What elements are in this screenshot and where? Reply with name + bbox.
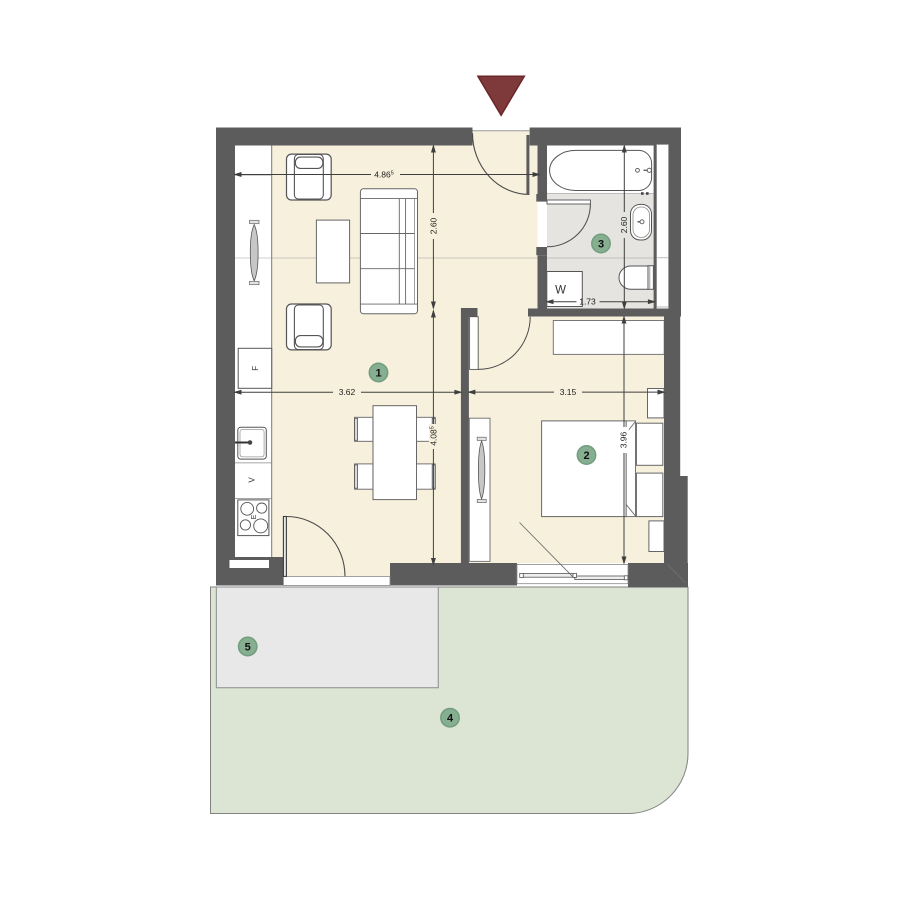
svg-text:2.60: 2.60 xyxy=(619,216,629,233)
svg-text:1: 1 xyxy=(375,368,381,380)
svg-text:V: V xyxy=(248,477,257,483)
svg-text:F: F xyxy=(251,366,260,371)
svg-text:3.96: 3.96 xyxy=(619,431,629,448)
svg-text:4: 4 xyxy=(447,713,454,725)
svg-text:5: 5 xyxy=(245,642,251,654)
svg-text:2.60: 2.60 xyxy=(428,217,438,234)
svg-text:W: W xyxy=(555,285,566,297)
svg-text:3.62: 3.62 xyxy=(339,387,356,397)
svg-text:1.73: 1.73 xyxy=(579,297,596,307)
svg-text:2: 2 xyxy=(583,450,589,462)
svg-text:3.15: 3.15 xyxy=(560,387,577,397)
svg-text:3: 3 xyxy=(598,239,604,251)
svg-text:E: E xyxy=(251,514,258,519)
